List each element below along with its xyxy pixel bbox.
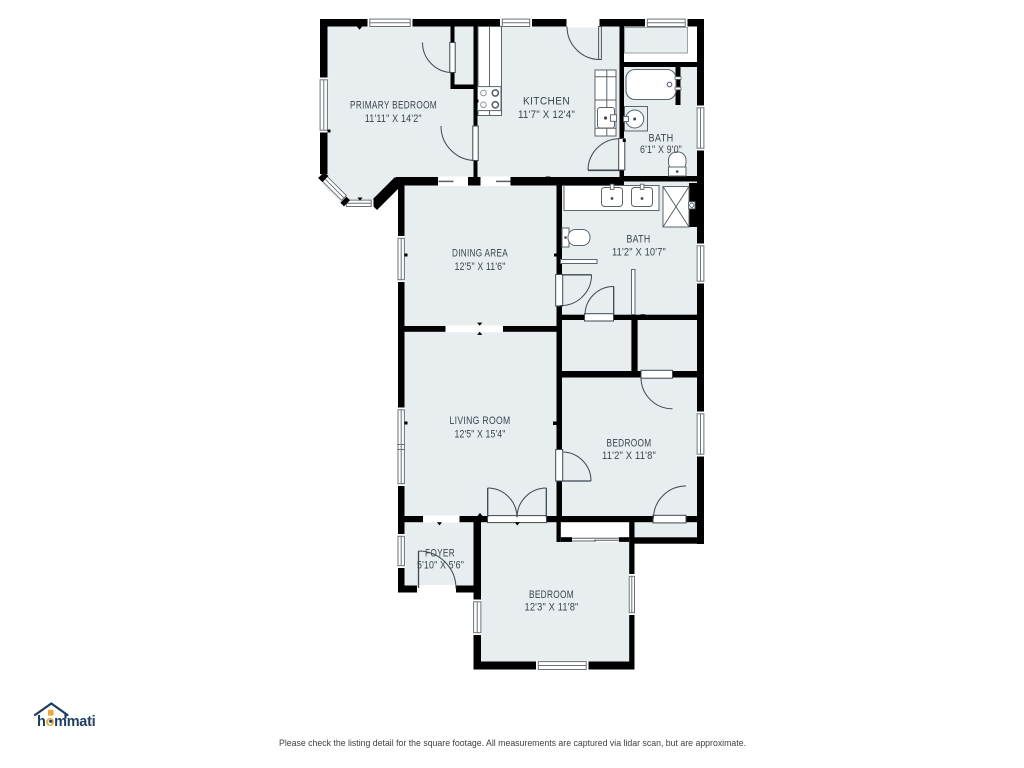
svg-text:12'5" X 15'4": 12'5" X 15'4" <box>455 429 506 441</box>
svg-text:11'2" X 10'7": 11'2" X 10'7" <box>612 247 666 259</box>
svg-text:BEDROOM: BEDROOM <box>529 589 574 601</box>
svg-text:Please check the listing detai: Please check the listing detail for the … <box>279 738 746 749</box>
svg-text:FOYER: FOYER <box>425 548 455 560</box>
svg-text:BEDROOM: BEDROOM <box>607 438 652 450</box>
svg-text:.com: .com <box>89 716 94 726</box>
svg-text:12'3" X 11'8": 12'3" X 11'8" <box>525 602 579 614</box>
svg-text:11'7" X 12'4": 11'7" X 12'4" <box>518 109 575 121</box>
svg-text:BATH: BATH <box>649 133 674 145</box>
svg-text:12'5" X 11'6": 12'5" X 11'6" <box>455 261 506 273</box>
svg-text:PRIMARY BEDROOM: PRIMARY BEDROOM <box>350 100 437 112</box>
svg-text:DINING AREA: DINING AREA <box>452 248 508 260</box>
svg-text:hommati: hommati <box>37 714 95 730</box>
svg-text:11'2" X 11'8": 11'2" X 11'8" <box>602 450 656 462</box>
svg-text:LIVING ROOM: LIVING ROOM <box>450 415 511 427</box>
svg-text:5'10" X 5'6": 5'10" X 5'6" <box>417 560 464 572</box>
svg-text:6'1" X 9'0": 6'1" X 9'0" <box>640 144 682 156</box>
svg-text:BATH: BATH <box>627 234 651 246</box>
svg-text:11'11" X 14'2": 11'11" X 14'2" <box>365 113 422 125</box>
svg-text:KITCHEN: KITCHEN <box>523 96 570 108</box>
